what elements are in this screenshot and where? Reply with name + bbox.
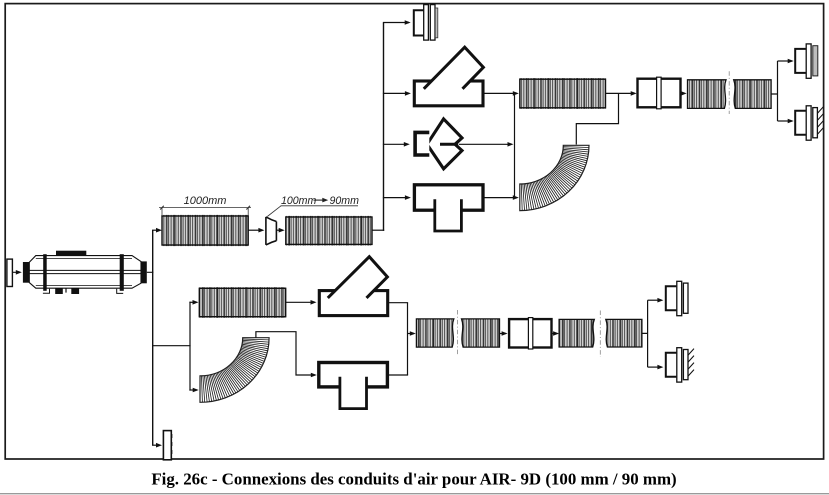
svg-text:100mm: 100mm [281,195,316,207]
svg-text:1000mm: 1000mm [184,195,227,207]
svg-text:Fig. 26c - Connexions des cond: Fig. 26c - Connexions des conduits d'air… [151,469,676,488]
svg-text:90mm: 90mm [330,195,360,207]
